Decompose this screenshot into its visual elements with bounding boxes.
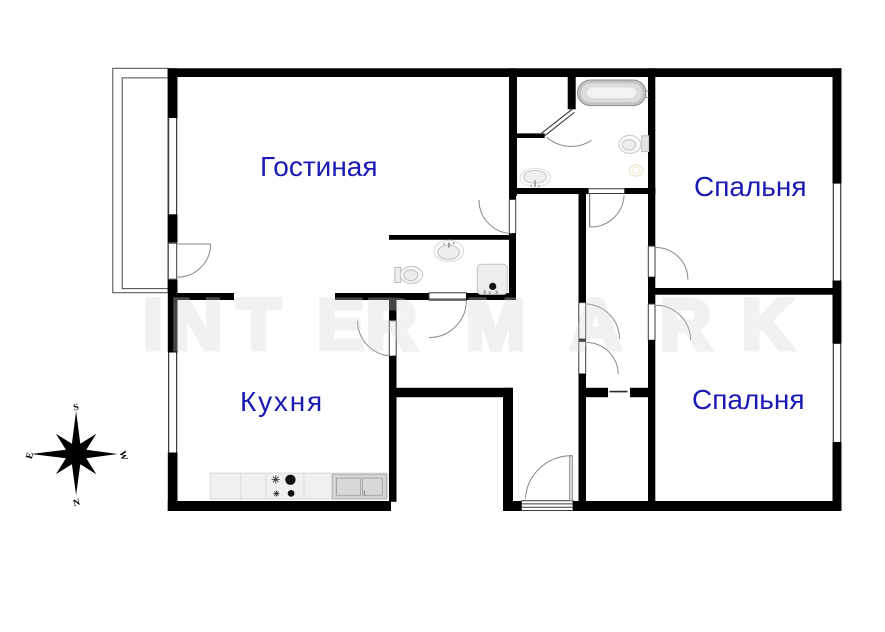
svg-text:S: S bbox=[72, 402, 80, 413]
svg-text:N: N bbox=[72, 498, 81, 509]
svg-text:INTERMARK: INTERMARK bbox=[143, 286, 793, 365]
svg-text:W: W bbox=[116, 450, 128, 462]
svg-text:E: E bbox=[25, 451, 36, 460]
